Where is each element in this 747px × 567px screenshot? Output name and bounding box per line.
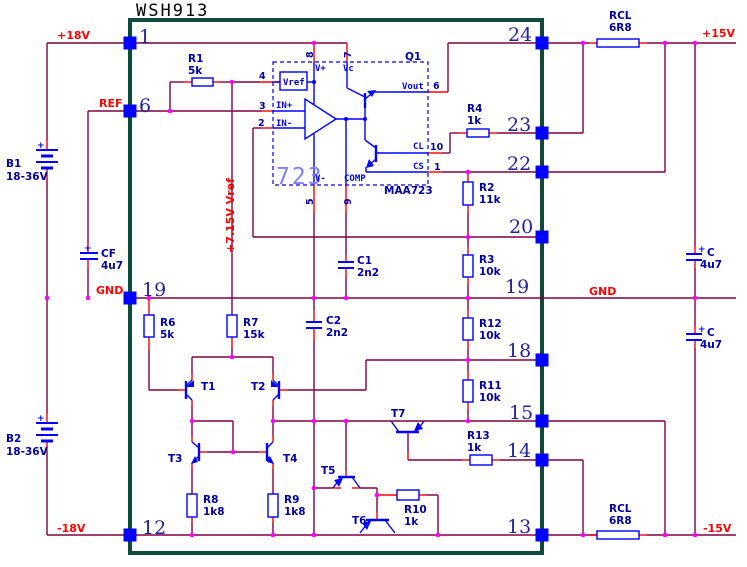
capacitor-c1-name: C1 <box>357 255 372 267</box>
ic-label-vplus: V+ <box>315 64 326 74</box>
resistor-r6-value: 5k <box>160 329 175 341</box>
net-label-m18v: -18V <box>57 522 86 535</box>
pin-number-13: 13 <box>507 516 531 538</box>
pin-squares <box>124 37 549 542</box>
pin-number-24: 24 <box>508 24 532 46</box>
pin-number-12: 12 <box>142 517 166 539</box>
capacitor-right-top-plus: + <box>698 245 706 255</box>
transistor-t4 <box>267 442 274 464</box>
transistor-t7-label: T7 <box>391 408 405 420</box>
resistor-r9-name: R9 <box>284 494 299 506</box>
transistor-t7 <box>391 421 424 432</box>
ic-label-cs: CS <box>413 162 424 172</box>
resistor-r11-symbol <box>463 380 473 402</box>
pin-square-22 <box>536 166 549 179</box>
resistor-r11-name: R11 <box>479 380 502 392</box>
transistor-t5 <box>333 477 360 488</box>
resistor-r3-value: 10k <box>479 266 502 278</box>
transistor-t3-label: T3 <box>168 453 182 465</box>
resistor-rcl-bottom-symbol <box>597 531 639 539</box>
ic-pad-1: 1 <box>434 162 441 173</box>
pin-number-14: 14 <box>507 440 531 462</box>
resistor-r8-value: 1k8 <box>203 506 225 518</box>
ic-label-cl: CL <box>413 142 424 152</box>
ic-pad-8: 8 <box>305 51 316 58</box>
resistor-r12-symbol <box>463 318 473 340</box>
battery-b2-name: B2 <box>6 433 21 445</box>
net-label-gnd-right: GND <box>589 285 616 298</box>
pin-square-1 <box>124 37 137 50</box>
resistor-rcl-top-name: RCL <box>609 10 632 22</box>
ic-label-vc: Vc <box>343 64 354 74</box>
resistor-r4-symbol <box>467 129 489 137</box>
ic-pad-5: 5 <box>305 198 316 205</box>
ic-pad-7: 7 <box>343 51 354 58</box>
pin-number-23: 23 <box>507 114 531 136</box>
resistor-rcl-top-value: 6R8 <box>609 22 632 34</box>
net-label-m15v: -15V <box>703 522 732 535</box>
ic-label-vminus: V- <box>315 174 326 184</box>
battery-b1-name: B1 <box>6 158 21 170</box>
ic-label-vout: Vout <box>402 82 424 92</box>
resistor-r4-value: 1k <box>467 115 482 127</box>
pin-square-19 <box>124 292 137 305</box>
transistor-t2 <box>271 380 279 400</box>
resistor-r11-value: 10k <box>479 392 502 404</box>
transistor-t6-label: T6 <box>352 515 366 527</box>
net-label-p15v: +15V <box>702 27 736 40</box>
capacitor-c1-value: 2n2 <box>357 267 379 279</box>
resistor-r7-symbol <box>227 315 237 337</box>
pin-number-6: 6 <box>139 95 151 117</box>
pin-square-14 <box>536 454 549 467</box>
pin-number-18: 18 <box>507 340 531 362</box>
schematic-canvas: WSH913 +18V REF GND -18V +15V -15V GND +… <box>0 0 747 567</box>
pin-number-1: 1 <box>139 26 151 48</box>
net-label-p18v: +18V <box>57 29 91 42</box>
resistor-r6-symbol <box>144 315 154 337</box>
pin-square-13 <box>536 529 549 542</box>
ic-label-in-minus: IN- <box>276 119 292 129</box>
capacitor-c2-symbol <box>306 322 322 328</box>
capacitor-cf-name: CF <box>101 248 116 260</box>
npn-arrow-limit <box>366 159 374 168</box>
capacitor-c2-name: C2 <box>326 315 341 327</box>
resistor-r6-name: R6 <box>160 317 175 329</box>
battery-b2-value: 18-36V <box>6 446 49 458</box>
resistor-r3-symbol <box>463 255 473 277</box>
schematic-page: WSH913 +18V REF GND -18V +15V -15V GND +… <box>0 0 747 567</box>
resistor-r8-symbol <box>187 494 197 517</box>
resistor-r9-symbol <box>268 494 278 517</box>
ic-pad-4: 4 <box>259 71 266 82</box>
net-label-gnd-left: GND <box>96 284 123 297</box>
pin-square-12 <box>124 529 137 542</box>
resistor-rcl-bottom-value: 6R8 <box>609 515 632 527</box>
resistor-r2-name: R2 <box>479 182 494 194</box>
transistor-t4-label: T4 <box>283 453 297 465</box>
pin-number-22: 22 <box>507 153 531 175</box>
resistor-r9-value: 1k8 <box>284 506 306 518</box>
transistor-t1 <box>186 380 194 400</box>
transistor-t1-label: T1 <box>201 381 215 393</box>
pin-square-18 <box>536 354 549 367</box>
resistor-rcl-top-symbol <box>597 39 639 47</box>
ic-723-designator: Q1 <box>405 51 421 63</box>
resistor-r13-value: 1k <box>467 442 482 454</box>
pin-square-23 <box>536 127 549 140</box>
pin-square-6 <box>124 105 137 118</box>
capacitor-right-bottom-value: 4u7 <box>700 339 722 351</box>
transistor-t3 <box>191 442 199 464</box>
capacitor-right-bottom-name: C <box>707 327 715 339</box>
resistor-r1-value: 5k <box>188 65 203 77</box>
transistor-t2-label: T2 <box>251 381 265 393</box>
resistor-rcl-bottom-name: RCL <box>609 503 632 515</box>
pin-number-19-left: 19 <box>142 279 166 301</box>
resistor-r12-value: 10k <box>479 330 502 342</box>
resistor-r2-value: 11k <box>479 194 502 206</box>
resistor-r13-name: R13 <box>467 430 490 442</box>
capacitor-right-top-value: 4u7 <box>700 259 722 271</box>
opamp-triangle <box>305 99 336 139</box>
capacitor-cf-value: 4u7 <box>101 260 123 272</box>
resistor-symbols <box>144 39 639 539</box>
battery-b1-value: 18-36V <box>6 171 49 183</box>
resistor-r2-symbol <box>463 182 473 205</box>
resistor-r7-value: 15k <box>243 329 266 341</box>
battery-b1-symbol <box>36 150 58 168</box>
battery-b2-symbol <box>36 423 58 441</box>
pin-square-15 <box>536 415 549 428</box>
capacitor-c1-symbol <box>338 262 354 268</box>
resistor-r7-name: R7 <box>243 317 258 329</box>
resistor-r8-name: R8 <box>203 494 218 506</box>
resistor-r12-name: R12 <box>479 318 502 330</box>
battery-b1-plus: + <box>37 141 45 151</box>
net-label-vref-rail: +7.15V Vref <box>224 178 237 253</box>
transistor-t5-label: T5 <box>321 465 335 477</box>
pin-square-24 <box>536 37 549 50</box>
pin-number-19-right: 19 <box>505 276 529 298</box>
resistor-r13-symbol <box>470 455 492 465</box>
resistor-r10-value: 1k <box>404 516 419 528</box>
page-title: WSH913 <box>136 1 209 21</box>
capacitor-cf-plus: + <box>84 244 92 254</box>
ic-723-part-number: MAA723 <box>384 185 433 197</box>
capacitor-c2-value: 2n2 <box>326 327 348 339</box>
ic-label-vref: Vref <box>283 78 305 88</box>
ic-pad-6: 6 <box>433 81 440 92</box>
resistor-r3-name: R3 <box>479 254 494 266</box>
ic-pad-2: 2 <box>258 118 265 129</box>
resistor-r1-name: R1 <box>188 53 203 65</box>
capacitor-right-top-name: C <box>707 247 715 259</box>
pin-number-15: 15 <box>509 402 533 424</box>
battery-b2-plus: + <box>37 414 45 424</box>
ic-label-comp: COMP <box>344 174 366 184</box>
resistor-r10-symbol <box>397 490 419 500</box>
ic-pad-10: 10 <box>430 142 444 153</box>
resistor-r4-name: R4 <box>467 103 482 115</box>
ic-label-in-plus: IN+ <box>276 101 293 111</box>
ic-pad-3: 3 <box>259 101 266 112</box>
capacitor-right-bottom-plus: + <box>698 325 706 335</box>
resistor-r10-name: R10 <box>404 504 427 516</box>
net-label-ref: REF <box>99 97 123 110</box>
resistor-r1-symbol <box>192 78 213 86</box>
ic-pad-9: 9 <box>343 198 354 205</box>
pin-number-20: 20 <box>509 216 533 238</box>
pin-square-20 <box>536 231 549 244</box>
